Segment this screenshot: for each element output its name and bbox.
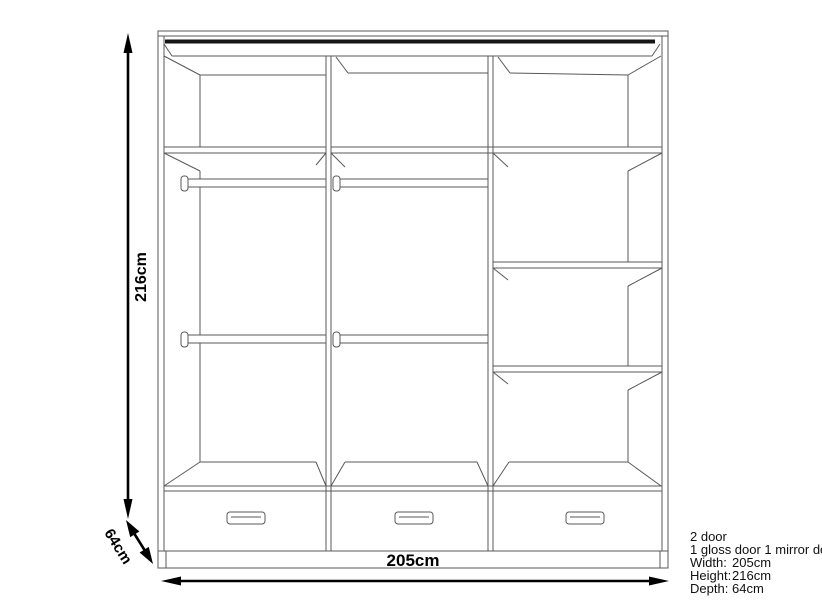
rail-end-cap	[181, 332, 188, 347]
height-dimension-arrow	[124, 33, 133, 519]
arrowhead-up	[124, 33, 133, 53]
hanging-rail-left-top	[181, 176, 326, 191]
hanging-rail-middle-top	[333, 176, 488, 191]
arrowhead-down	[124, 499, 133, 519]
spec-text-block: 2 door 1 gloss door 1 mirror do Width:20…	[690, 529, 822, 596]
shelf-middle-top	[331, 147, 493, 167]
wardrobe-outline	[158, 31, 668, 568]
hanging-rail-middle-lower	[333, 332, 488, 347]
arrowhead-left	[161, 577, 181, 586]
wardrobe-dimension-diagram: 205cm 216cm 64cm 2 door 1 gloss door 1 m…	[0, 0, 822, 600]
drawer-handle-right	[566, 512, 604, 524]
rail-end-cap	[333, 332, 340, 347]
hanging-rail-left-lower	[181, 332, 326, 347]
arrowhead-up-left	[126, 520, 139, 537]
width-dimension-label: 205cm	[387, 551, 440, 570]
rail-tube	[339, 335, 488, 343]
shelf-left-top	[164, 147, 326, 171]
arrowhead-right	[649, 577, 669, 586]
spec-row-depth: Depth:64cm	[690, 581, 764, 596]
track-fascia-left-edge	[164, 44, 172, 56]
track-fascia-right-edge	[652, 44, 660, 56]
rail-tube	[187, 179, 326, 187]
rail-end-cap	[333, 176, 340, 191]
arrowhead-down-right	[140, 547, 153, 564]
rail-end-cap	[181, 176, 188, 191]
shelf-right-2	[493, 262, 662, 286]
top-track-assembly	[164, 42, 660, 57]
outer-frame	[158, 31, 668, 568]
shelf-right-3	[493, 366, 662, 390]
drawer-handle-left	[227, 512, 265, 524]
height-dimension-label: 216cm	[133, 252, 150, 302]
floor-perspective	[164, 462, 662, 486]
ceiling-perspective	[164, 56, 661, 75]
drawer-zone	[158, 491, 668, 551]
drawer-handle-middle	[395, 512, 433, 524]
diagram-canvas: 205cm 216cm 64cm 2 door 1 gloss door 1 m…	[0, 0, 822, 600]
rail-tube	[339, 179, 488, 187]
rail-tube	[187, 335, 326, 343]
shelf-right-1	[493, 147, 662, 171]
width-dimension-arrow	[161, 577, 669, 586]
section-dividers	[326, 56, 493, 551]
